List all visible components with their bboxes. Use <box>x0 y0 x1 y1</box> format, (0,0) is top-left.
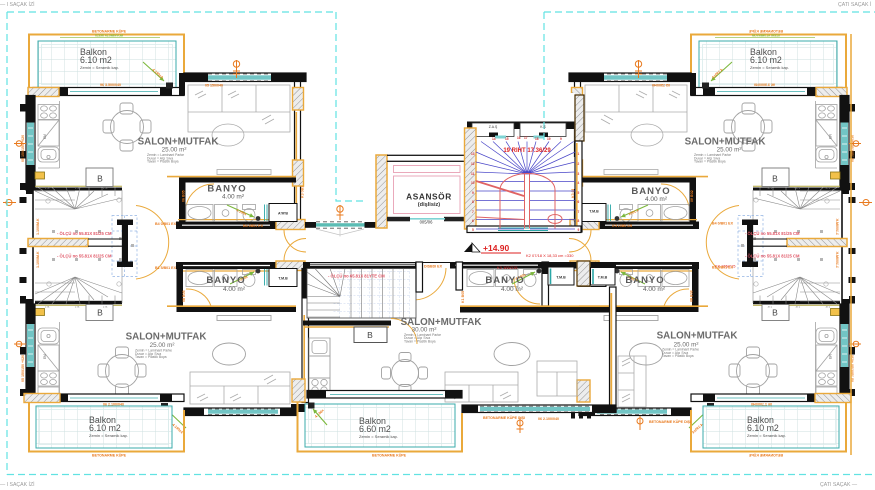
svg-text:6.10 m2: 6.10 m2 <box>747 423 779 433</box>
svg-text:175: 175 <box>75 305 80 309</box>
svg-text:3: 3 <box>578 172 580 176</box>
svg-text:BETONARME KÜPE: BETONARME KÜPE <box>92 453 127 458</box>
svg-text:6.60 m2: 6.60 m2 <box>359 424 391 434</box>
svg-text:8: 8 <box>578 219 580 223</box>
svg-text:12: 12 <box>471 162 475 166</box>
svg-text:175: 175 <box>45 305 50 309</box>
svg-text:- ÖLÇÜ no 55.81X 81/25 CM: - ÖLÇÜ no 55.81X 81/25 CM <box>745 254 800 259</box>
svg-text:T.M.B: T.M.B <box>556 276 566 280</box>
svg-text:2: 2 <box>578 162 580 166</box>
svg-text:Tavan = Plastik Boya: Tavan = Plastik Boya <box>694 160 726 164</box>
svg-text:BANYO: BANYO <box>625 275 664 286</box>
svg-text:(dişlisiz): (dişlisiz) <box>418 202 441 208</box>
svg-text:96 3.500/040: 96 3.500/040 <box>100 83 121 87</box>
svg-text:+14.90: +14.90 <box>483 243 510 253</box>
svg-text:BETONARME KÜPE DIŞI: BETONARME KÜPE DIŞI <box>649 419 691 424</box>
svg-text:Zemin = Seramik kap.: Zemin = Seramik kap. <box>359 434 398 439</box>
svg-text:5: 5 <box>472 228 474 232</box>
svg-text:19 RIHT 17.36/29: 19 RIHT 17.36/29 <box>503 148 551 154</box>
svg-text:Tavan = Plastik Boya: Tavan = Plastik Boya <box>147 160 179 164</box>
svg-text:13: 13 <box>471 152 475 156</box>
svg-text:Tavan = Plastik Boya: Tavan = Plastik Boya <box>662 354 694 358</box>
svg-text:BANYO: BANYO <box>206 275 245 286</box>
svg-text:— I SAÇAK İZİ: — I SAÇAK İZİ <box>0 481 35 488</box>
svg-text:4.00 m²: 4.00 m² <box>223 286 246 293</box>
svg-text:BANYO: BANYO <box>485 275 524 286</box>
svg-text:1.100/M.K: 1.100/M.K <box>36 218 40 235</box>
svg-text:4.00 m²: 4.00 m² <box>501 286 524 293</box>
svg-text:05 150/150 +020: 05 150/150 +020 <box>21 355 25 382</box>
svg-text:K3 165/215: K3 165/215 <box>497 265 518 270</box>
svg-text:06 2.100/040: 06 2.100/040 <box>538 417 559 421</box>
svg-text:— I SAÇAK İZİ: — I SAÇAK İZİ <box>0 1 35 8</box>
svg-text:- ÖLÇÜ no 65.81X 81YTE CM: - ÖLÇÜ no 65.81X 81YTE CM <box>328 274 385 279</box>
svg-text:175: 175 <box>45 186 50 190</box>
svg-text:1: 1 <box>578 152 580 156</box>
svg-text:10: 10 <box>471 181 475 185</box>
svg-text:B4 0B01 EX: B4 0B01 EX <box>243 224 264 228</box>
svg-text:K2 07/18 X 18,33 cm =330: K2 07/18 X 18,33 cm =330 <box>526 253 574 258</box>
svg-text:Z.A.Ş: Z.A.Ş <box>489 125 498 129</box>
svg-text:05 150/040: 05 150/040 <box>205 84 223 88</box>
svg-text:- ÖLÇÜ no 55.81X 81/25 CM: - ÖLÇÜ no 55.81X 81/25 CM <box>57 231 112 236</box>
svg-text:4.00 m²: 4.00 m² <box>645 196 668 203</box>
svg-text:8: 8 <box>472 200 474 204</box>
svg-text:Zemin = Seramik kap.: Zemin = Seramik kap. <box>747 433 786 438</box>
svg-text:9: 9 <box>560 137 562 141</box>
svg-text:B1 5/B01 EX: B1 5/B01 EX <box>155 266 177 270</box>
svg-text:6: 6 <box>578 200 580 204</box>
svg-text:7: 7 <box>578 210 580 214</box>
svg-text:B1 5/B01 EX: B1 5/B01 EX <box>712 266 734 270</box>
svg-text:6.10 m2: 6.10 m2 <box>89 423 121 433</box>
svg-text:175: 175 <box>103 305 108 309</box>
svg-text:B: B <box>97 308 103 318</box>
svg-text:B: B <box>367 330 373 340</box>
svg-text:6.10 m2: 6.10 m2 <box>80 55 112 65</box>
svg-text:BETONARME KÜPE DIŞI: BETONARME KÜPE DIŞI <box>483 415 525 420</box>
svg-text:005/06: 005/06 <box>420 220 433 225</box>
svg-text:Zemin = Seramik kap.: Zemin = Seramik kap. <box>80 65 119 70</box>
svg-text:Zemin = Seramik kap.: Zemin = Seramik kap. <box>89 433 128 438</box>
svg-text:18: 18 <box>535 137 539 141</box>
svg-text:15: 15 <box>505 137 509 141</box>
svg-text:B: B <box>97 174 103 184</box>
svg-text:16: 16 <box>517 136 521 140</box>
svg-text:K.Ş: K.Ş <box>540 125 546 129</box>
svg-text:BETONARME KÜPE: BETONARME KÜPE <box>372 453 407 458</box>
svg-text:T.M.B: T.M.B <box>598 276 608 280</box>
svg-text:08 B05: 08 B05 <box>182 290 186 302</box>
svg-text:- ÖLÇÜ no 55.81X 81/25 CM: - ÖLÇÜ no 55.81X 81/25 CM <box>57 254 112 259</box>
svg-text:17: 17 <box>524 136 528 140</box>
svg-text:4.00 m²: 4.00 m² <box>222 194 245 201</box>
svg-text:9: 9 <box>578 228 580 232</box>
svg-text:T.M.B: T.M.B <box>278 277 288 281</box>
svg-text:5: 5 <box>578 191 580 195</box>
svg-text:- ÖLÇÜ no 55.81X 81/25 CM: - ÖLÇÜ no 55.81X 81/25 CM <box>745 231 800 236</box>
svg-text:6: 6 <box>472 219 474 223</box>
svg-text:6.10 m2: 6.10 m2 <box>750 55 782 65</box>
svg-text:05 150/150 +020: 05 150/150 +020 <box>21 135 25 162</box>
svg-text:175: 175 <box>75 186 80 190</box>
svg-text:4: 4 <box>578 181 580 185</box>
svg-text:9: 9 <box>472 191 474 195</box>
svg-text:K1 B05: K1 B05 <box>461 291 465 303</box>
svg-text:06 2.100/040: 06 2.100/040 <box>103 403 124 407</box>
svg-text:14: 14 <box>492 137 496 141</box>
svg-text:Tavan = Plastik Boya: Tavan = Plastik Boya <box>404 339 436 343</box>
svg-text:SALON+MUTFAK: SALON+MUTFAK <box>126 332 207 343</box>
svg-text:SALON+MUTFAK: SALON+MUTFAK <box>657 331 738 342</box>
svg-text:Zemin = Seramik kap.: Zemin = Seramik kap. <box>750 65 789 70</box>
svg-text:EM: EM <box>43 134 47 139</box>
svg-text:175: 175 <box>103 186 108 190</box>
svg-text:06 B05: 06 B05 <box>182 190 186 202</box>
svg-text:4.00 m²: 4.00 m² <box>643 286 666 293</box>
svg-text:ÜZERİ ALÜMİNYUM: ÜZERİ ALÜMİNYUM <box>95 33 124 38</box>
svg-text:T.M.B: T.M.B <box>589 210 599 214</box>
svg-text:A'M'B: A'M'B <box>278 212 288 216</box>
svg-text:7: 7 <box>472 210 474 214</box>
svg-text:B4 0/B01 EX: B4 0/B01 EX <box>712 222 734 226</box>
svg-text:19: 19 <box>547 137 551 141</box>
svg-text:K3 0B3: K3 0B3 <box>301 186 305 198</box>
svg-text:DISBDI EX: DISBDI EX <box>424 265 443 269</box>
svg-text:Tavan = Plastik Boya: Tavan = Plastik Boya <box>135 355 167 359</box>
svg-text:B: B <box>772 308 778 318</box>
svg-text:ÇATI SAÇAK —: ÇATI SAÇAK — <box>820 482 858 488</box>
svg-text:B4 0/B01 EX: B4 0/B01 EX <box>155 222 177 226</box>
svg-text:1.100/M.K: 1.100/M.K <box>36 251 40 268</box>
svg-text:ÇATI SAÇAK İ: ÇATI SAÇAK İ <box>838 1 871 8</box>
svg-text:11: 11 <box>471 172 475 176</box>
svg-text:ASANSÖR: ASANSÖR <box>406 192 452 202</box>
svg-text:B: B <box>772 174 778 184</box>
svg-text:EM: EM <box>43 354 47 359</box>
